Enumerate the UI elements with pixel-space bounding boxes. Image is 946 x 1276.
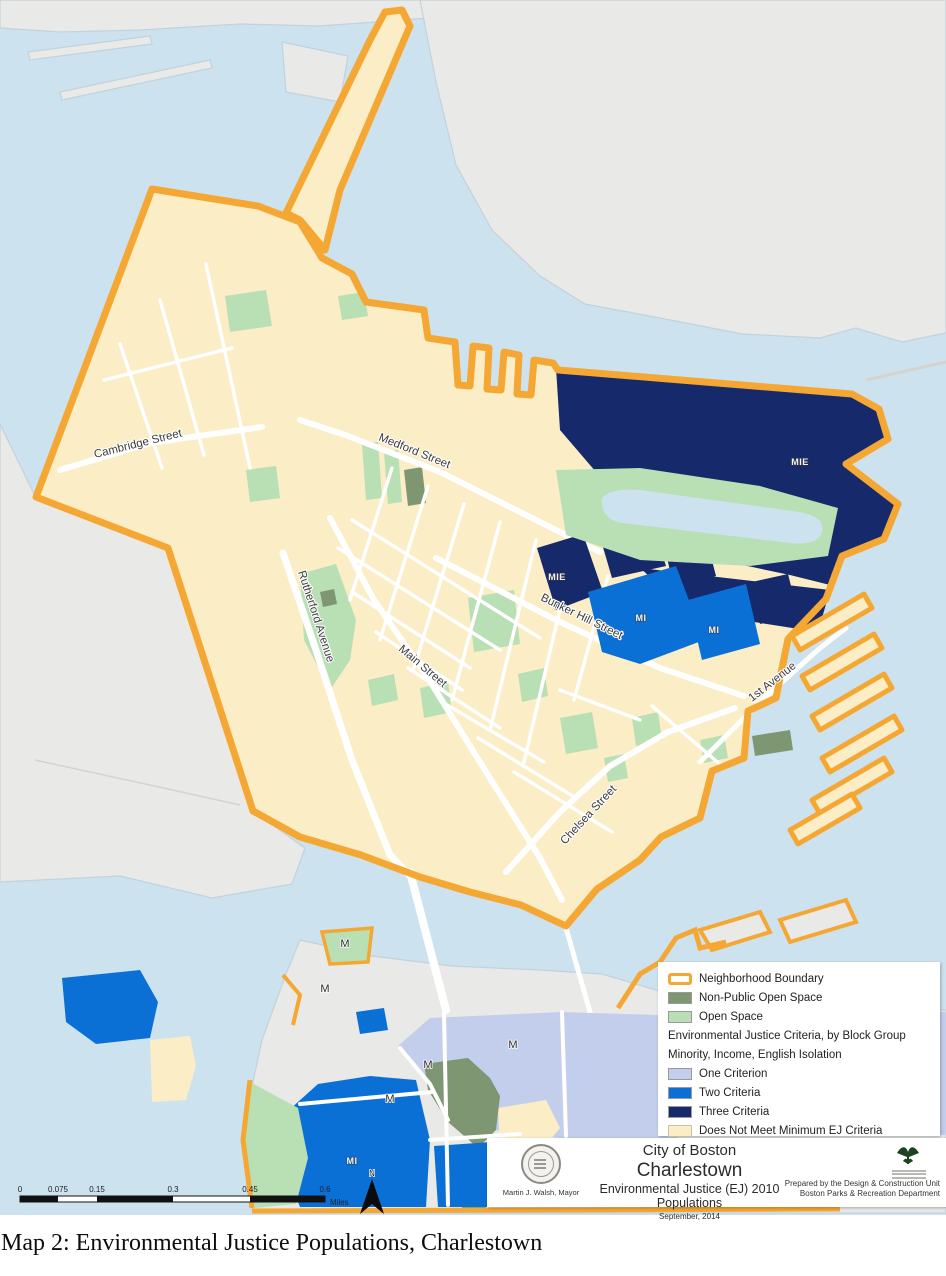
legend-section-header: Environmental Justice Criteria, by Block… — [668, 1026, 940, 1045]
legend-item-label: Does Not Meet Minimum EJ Criteria — [699, 1125, 882, 1137]
legend-item-label: Open Space — [699, 1011, 763, 1023]
legend-item-label: Neighborhood Boundary — [699, 973, 824, 985]
no-criteria-swatch — [668, 1125, 692, 1137]
block-label-mie: MIE — [548, 572, 566, 582]
legend-item-nonpublic-open-space: Non-Public Open Space — [668, 988, 940, 1007]
city-seal-column: Martin J. Walsh, Mayor — [493, 1142, 589, 1203]
prepared-line-1: Prepared by the Design & Construction Un… — [785, 1179, 940, 1189]
map-caption: Map 2: Environmental Justice Populations… — [1, 1230, 945, 1257]
mayor-credit: Martin J. Walsh, Mayor — [503, 1188, 579, 1197]
block-label-m: M — [385, 1093, 394, 1105]
prepared-line-2: Boston Parks & Recreation Department — [785, 1189, 940, 1199]
scale-unit-label: Miles — [330, 1198, 349, 1207]
logo-caption-decoration — [892, 1168, 926, 1179]
one-criterion-swatch — [668, 1068, 692, 1080]
title-city: City of Boston — [589, 1143, 790, 1160]
nonpublic-open-space-swatch — [668, 992, 692, 1004]
block-label-m: M — [340, 938, 349, 950]
legend-panel: Neighborhood Boundary Non-Public Open Sp… — [658, 962, 940, 1136]
scale-tick: 0 — [18, 1185, 23, 1194]
block-label-m: M — [508, 1039, 517, 1051]
title-date: September, 2014 — [589, 1213, 790, 1222]
block-label-mi: MI — [636, 613, 647, 623]
legend-item-label: Two Criteria — [699, 1087, 760, 1099]
north-arrow-label: N — [369, 1169, 375, 1178]
legend-item-neighborhood-boundary: Neighborhood Boundary — [668, 969, 940, 988]
title-neighborhood: Charlestown — [589, 1160, 790, 1181]
boundary-swatch — [668, 973, 692, 985]
legend-item-one-criterion: One Criterion — [668, 1064, 940, 1083]
scale-tick: 0.15 — [89, 1185, 105, 1194]
scale-tick: 0.6 — [319, 1185, 331, 1194]
boston-city-seal-icon — [521, 1144, 561, 1184]
three-criteria-swatch — [668, 1106, 692, 1118]
scale-tick: 0.3 — [167, 1185, 179, 1194]
parks-department-logo-icon — [894, 1144, 922, 1168]
legend-item-label: Non-Public Open Space — [699, 992, 822, 1004]
legend-item-label: One Criterion — [699, 1068, 767, 1080]
block-label-mi: MI — [347, 1156, 358, 1166]
legend-item-open-space: Open Space — [668, 1007, 940, 1026]
block-label-mi: MI — [709, 625, 720, 635]
title-block: Martin J. Walsh, Mayor City of Boston Ch… — [487, 1138, 946, 1207]
map-title-text: City of Boston Charlestown Environmental… — [589, 1142, 790, 1203]
two-criteria-swatch — [668, 1087, 692, 1099]
map-page: Cambridge Street Medford Street Rutherfo… — [0, 0, 946, 1276]
block-label-m: M — [320, 983, 329, 995]
scale-tick: 0.075 — [48, 1185, 69, 1194]
block-label-mie: MIE — [791, 457, 809, 467]
block-label-m: M — [423, 1059, 432, 1071]
legend-item-three-criteria: Three Criteria — [668, 1102, 940, 1121]
open-space-swatch — [668, 1011, 692, 1023]
prepared-by-credit: Prepared by the Design & Construction Un… — [785, 1179, 940, 1199]
credits-column: Prepared by the Design & Construction Un… — [790, 1142, 940, 1203]
legend-item-label: Three Criteria — [699, 1106, 769, 1118]
scale-tick: 0.45 — [242, 1185, 258, 1194]
title-subtitle: Environmental Justice (EJ) 2010 Populati… — [589, 1182, 790, 1210]
legend-section-subheader: Minority, Income, English Isolation — [668, 1045, 940, 1064]
legend-item-two-criteria: Two Criteria — [668, 1083, 940, 1102]
